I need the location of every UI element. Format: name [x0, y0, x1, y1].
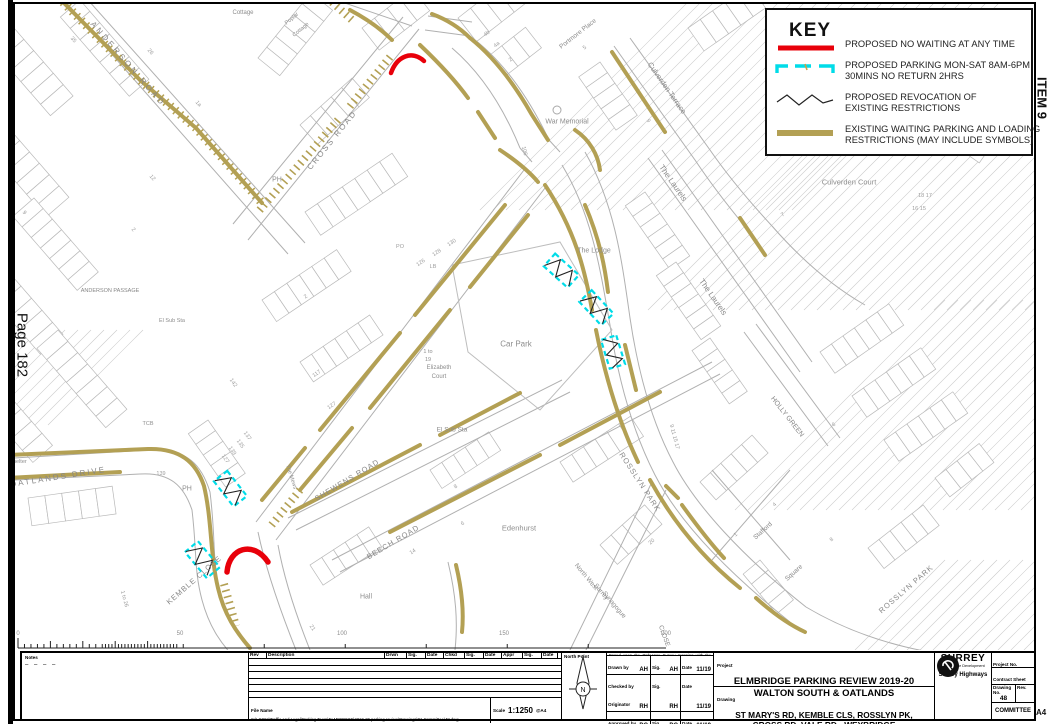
paper-size-corner-label: A4	[1036, 708, 1046, 717]
page-number-label: Page 182	[14, 313, 31, 377]
agenda-item-label: ITEM 9	[1035, 77, 1049, 119]
drawing-page: ANDERSON ROADCROSS ROADOATLANDS DRIVEKEM…	[0, 0, 1049, 724]
drawing-frame	[13, 2, 1036, 721]
